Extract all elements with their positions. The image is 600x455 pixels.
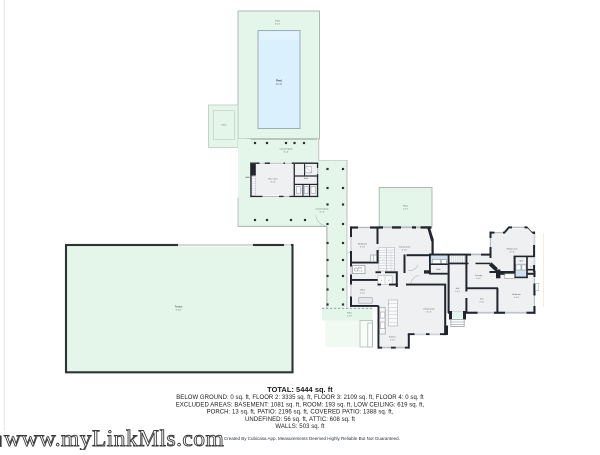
svg-text:WALLS: 503 sq. ft: WALLS: 503 sq. ft (275, 424, 324, 430)
svg-text:Den: Den (480, 299, 484, 301)
svg-text:Dining room: Dining room (423, 308, 434, 311)
svg-text:0' x 0': 0' x 0' (358, 271, 363, 273)
svg-text:Covered patio: Covered patio (280, 148, 294, 151)
svg-text:0' x 0': 0' x 0' (360, 247, 366, 249)
svg-text:UNDEFINED: 56 sq. ft, ATTIC: 6: UNDEFINED: 56 sq. ft, ATTIC: 608 sq. ft (245, 417, 355, 423)
svg-text:Sitting room: Sitting room (506, 248, 517, 251)
svg-text:0' x 0': 0' x 0' (476, 278, 481, 280)
svg-text:Hall: Hall (456, 288, 460, 290)
svg-text:Bath: Bath (358, 267, 362, 270)
svg-text:Bedroom: Bedroom (512, 293, 521, 296)
svg-text:Kitchen: Kitchen (389, 336, 397, 339)
svg-text:0' x 0': 0' x 0' (514, 297, 519, 299)
svg-text:0' x 0': 0' x 0' (176, 310, 182, 312)
svg-text:0' x 0': 0' x 0' (480, 302, 485, 304)
svg-text:Pool: Pool (276, 79, 282, 83)
svg-text:Office: Office (360, 290, 366, 292)
svg-text:BELOW GROUND: 0 sq. ft, FLOOR: BELOW GROUND: 0 sq. ft, FLOOR 2: 3335 sq… (176, 395, 424, 401)
svg-text:Patio: Patio (222, 124, 228, 127)
svg-text:Patio: Patio (347, 312, 353, 315)
svg-text:Laundry: Laundry (475, 275, 482, 277)
svg-text:PORCH: 13 sq. ft, PATIO: 2196: PORCH: 13 sq. ft, PATIO: 2196 sq. ft, CO… (207, 410, 394, 416)
svg-text:Terrace: Terrace (175, 306, 184, 309)
svg-text:EXCLUDED AREAS: BASEMENT: 1081: EXCLUDED AREAS: BASEMENT: 1081 sq. ft, R… (176, 402, 425, 408)
svg-text:0' x 0': 0' x 0' (271, 182, 276, 184)
svg-text:WIC: WIC (519, 260, 523, 262)
svg-text:0' x 0': 0' x 0' (427, 312, 432, 314)
svg-text:0' x 0': 0' x 0' (402, 250, 408, 252)
svg-text:Bath: Bath (304, 177, 308, 180)
svg-text:Created By Cubicasa App. Measu: Created By Cubicasa App. Measurements De… (224, 436, 400, 441)
svg-text:0' x 0': 0' x 0' (320, 212, 325, 214)
svg-text:www.myLinkMls.com: www.myLinkMls.com (4, 426, 224, 450)
svg-text:0' x 0': 0' x 0' (276, 84, 282, 86)
svg-text:0' x 0': 0' x 0' (455, 291, 460, 293)
svg-text:0' x 0': 0' x 0' (403, 209, 408, 211)
svg-text:0' x 0': 0' x 0' (390, 340, 395, 342)
svg-text:Rec room: Rec room (268, 178, 277, 181)
svg-text:0' x 0': 0' x 0' (284, 152, 289, 154)
svg-text:Patio: Patio (403, 205, 409, 208)
svg-text:0' x 0': 0' x 0' (510, 252, 515, 254)
svg-text:0' x 0': 0' x 0' (360, 293, 365, 295)
svg-text:Covered patio: Covered patio (316, 208, 330, 211)
svg-text:Pool: Pool (275, 21, 280, 23)
svg-text:Bedroom: Bedroom (358, 243, 367, 246)
svg-text:0' x 0': 0' x 0' (275, 24, 281, 26)
svg-text:TOTAL: 5444 sq. ft: TOTAL: 5444 sq. ft (267, 385, 333, 394)
svg-text:Living room: Living room (399, 246, 410, 249)
svg-text:0' x 0': 0' x 0' (347, 316, 352, 318)
